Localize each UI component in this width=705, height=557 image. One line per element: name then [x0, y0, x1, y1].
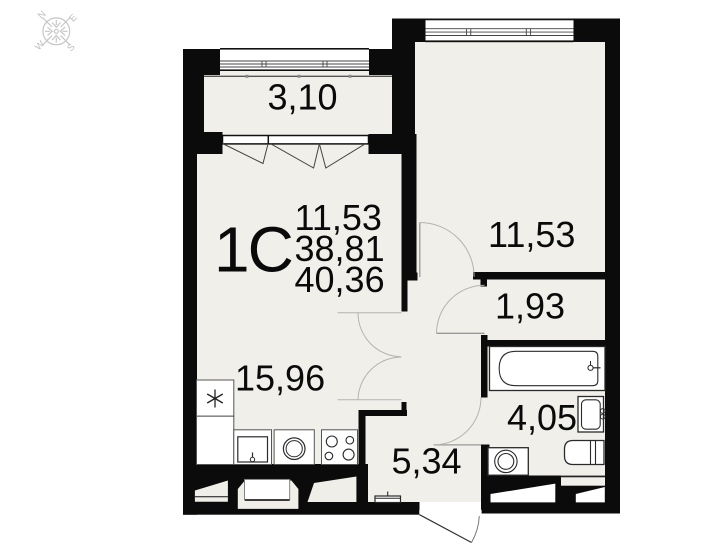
svg-text:15,96: 15,96 [235, 358, 325, 399]
svg-text:40,36: 40,36 [295, 259, 385, 300]
svg-text:1,93: 1,93 [495, 286, 565, 327]
svg-text:11,53: 11,53 [488, 214, 575, 255]
svg-text:1С: 1С [214, 213, 292, 285]
svg-text:4,05: 4,05 [507, 397, 577, 438]
svg-text:3,10: 3,10 [268, 77, 338, 118]
svg-text:5,34: 5,34 [392, 441, 462, 482]
